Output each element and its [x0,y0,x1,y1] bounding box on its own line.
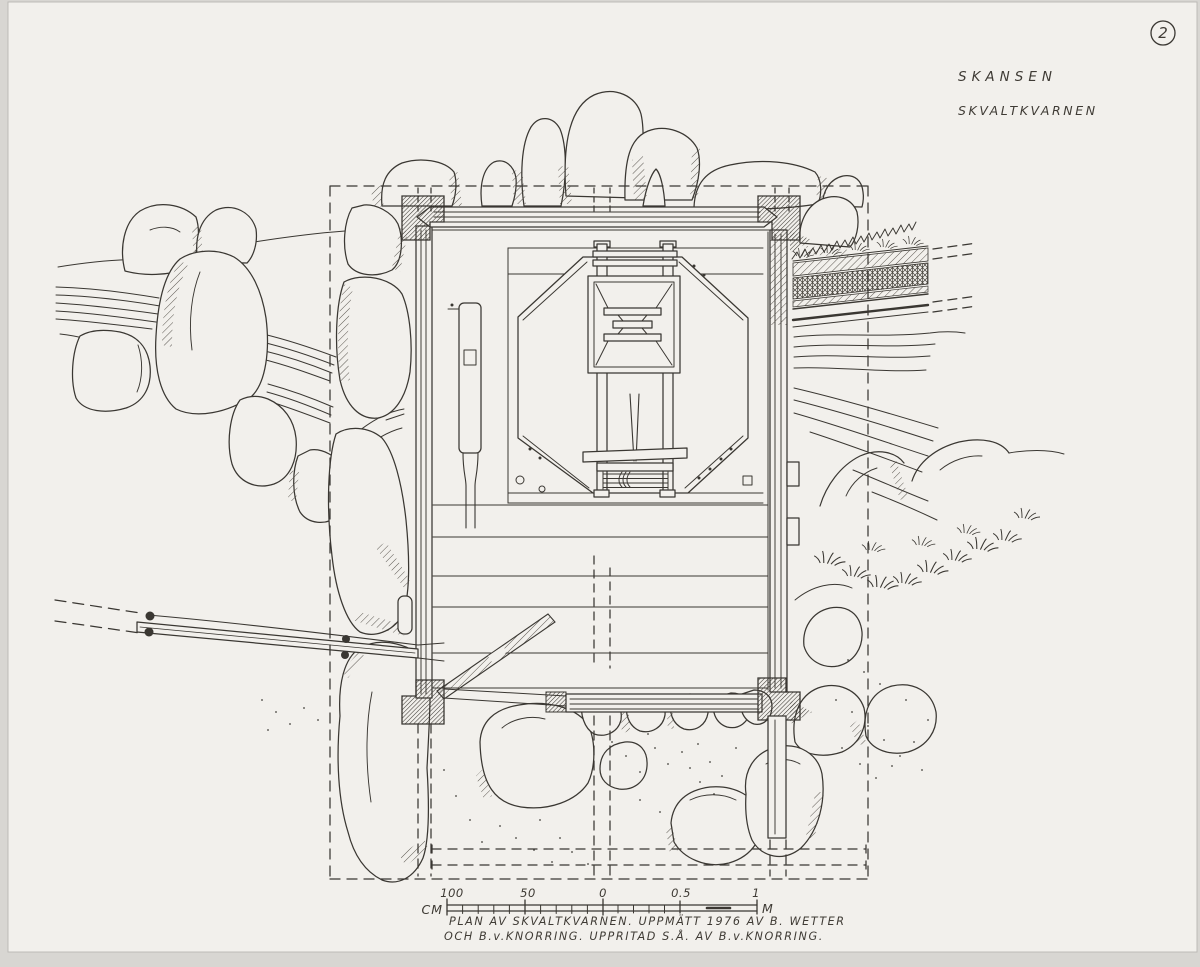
lower-bar [597,463,673,471]
cross-bar [593,260,677,266]
scale-tick-label: 1 [752,886,760,900]
rail-foot [660,490,675,497]
cross-bar [593,251,677,257]
wall-bracket [787,518,799,545]
spool-flange [604,308,661,315]
left-wall-log [416,226,432,698]
caption-line-1: PLAN AV SKVALTKVARNEN. UPPMÄTT 1976 AV B… [449,915,846,928]
scale-tick-label: 0 [599,886,607,900]
site-title: SKANSEN [958,69,1057,85]
spool-flange [604,334,661,341]
scale-tick-label: 100 [440,886,463,900]
wall-bracket [787,462,799,486]
foundation-board [768,716,786,838]
scale-unit-right: M [762,901,774,916]
scale-tick-label: 0.5 [671,886,691,900]
scale-unit-left: CM [421,902,443,917]
rail-foot [594,490,609,497]
rock [156,251,268,414]
plan-drawing-svg: CM M 100 50 0 0.5 1 PLAN AV SKVALTKVARNE… [0,0,1200,967]
subject-title: SKVALTKVARNEN [958,103,1098,118]
rock [865,685,936,753]
sheet-number: 2 [1158,24,1168,42]
rock [522,119,566,206]
lever-plank [459,303,481,453]
scale-tick-label: 50 [520,886,536,900]
rock [73,330,151,411]
door-jamb [546,692,566,712]
rock [480,703,594,807]
caption-line-2: OCH B.v.KNORRING. UPPRITAD S.Å. AV B.v.K… [444,930,824,943]
rock [398,596,412,634]
spool-hub [613,321,652,328]
scanned-drawing-sheet: CM M 100 50 0 0.5 1 PLAN AV SKVALTKVARNE… [0,0,1200,967]
